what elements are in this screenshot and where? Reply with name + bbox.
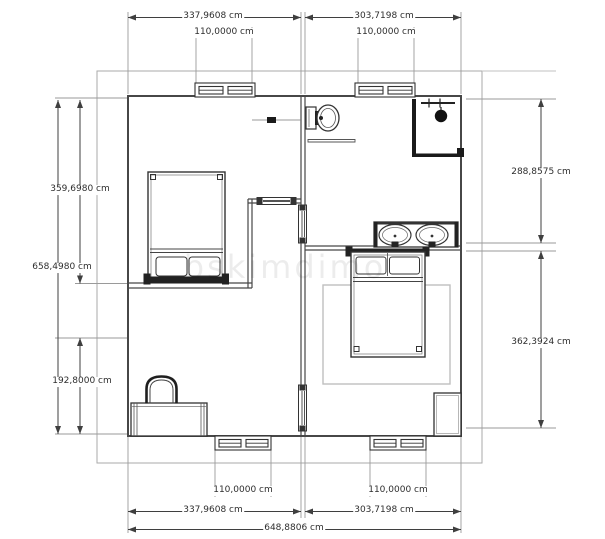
- dim-label-left-upper: 359,6980 cm: [49, 185, 111, 195]
- window-top-right: [355, 83, 415, 97]
- dim-label-bottom-window-left: 110,0000 cm: [212, 486, 274, 496]
- dim-label-bottom-window-right: 110,0000 cm: [367, 486, 429, 496]
- dim-label-top-window-left: 110,0000 cm: [193, 28, 255, 38]
- toilet: [306, 105, 339, 131]
- desk: [131, 403, 207, 436]
- vanity-double-sink: [374, 222, 458, 247]
- chair: [147, 377, 177, 404]
- window-bottom-left: [215, 436, 271, 450]
- shower-head-icon: [435, 110, 447, 122]
- dim-label-top-width-right: 303,7198 cm: [353, 12, 415, 22]
- door-center-upper: [299, 205, 307, 243]
- dim-label-bottom-width-left: 337,9608 cm: [182, 506, 244, 516]
- window-bottom-right: [370, 436, 426, 450]
- dim-label-right-upper: 288,8575 cm: [510, 168, 572, 178]
- dim-label-top-window-right: 110,0000 cm: [355, 28, 417, 38]
- watermark: bskimdimo: [140, 248, 430, 286]
- nightstand: [434, 393, 461, 436]
- door-partition: [257, 198, 296, 205]
- dim-label-bottom-total: 648,8806 cm: [263, 524, 325, 534]
- window-top-left: [195, 83, 255, 97]
- dim-label-bottom-width-right: 303,7198 cm: [353, 506, 415, 516]
- wall-shelf-mark: [252, 117, 301, 123]
- dim-label-top-width-left: 337,9608 cm: [182, 12, 244, 22]
- dim-label-left-total: 658,4980 cm: [31, 263, 93, 273]
- shower: [412, 99, 464, 158]
- dim-label-left-lower: 192,8000 cm: [51, 377, 113, 387]
- dim-label-right-lower: 362,3924 cm: [510, 338, 572, 348]
- towel-shelf: [308, 139, 355, 143]
- door-center-lower: [299, 385, 307, 431]
- floor-plan-screenshot: bskimdimo 337,9608 cm 303,7198 cm 110,00…: [0, 0, 605, 539]
